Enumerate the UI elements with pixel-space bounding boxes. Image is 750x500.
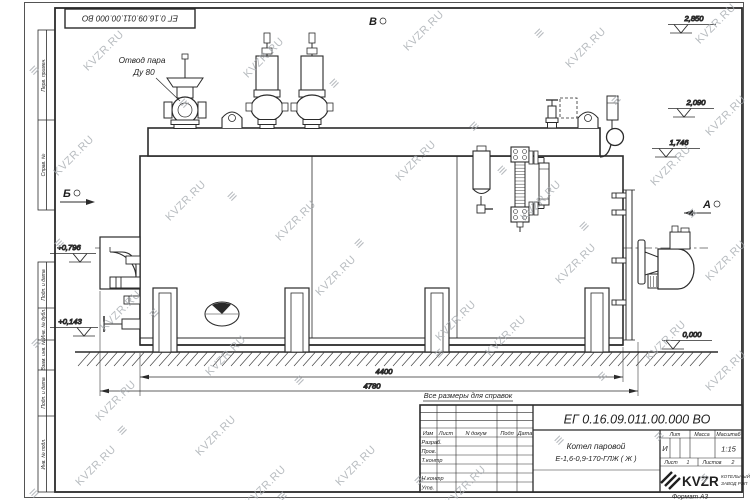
steam-outlet-text-1: Отвод пара: [119, 56, 166, 65]
reference-note-text: Все размеры для справок: [424, 391, 513, 400]
margin-label: Подп. и дата: [41, 377, 47, 409]
logo-text: KVZR: [682, 474, 719, 489]
margin-label: Инв. № дубл.: [41, 309, 47, 340]
product-name-2: Е-1,6-0,9-170-ГЛЖ ( Ж ): [555, 454, 637, 463]
steam-outlet-text-2: Ду 80: [132, 68, 155, 77]
boiler-body-group: [75, 33, 718, 366]
safety-valve: [246, 33, 333, 129]
sheet-value: 1: [687, 460, 690, 466]
row-razrab: Разраб.: [422, 440, 442, 446]
row-utv: Утв.: [421, 486, 435, 492]
col-podp: Подп: [500, 431, 513, 437]
format-label: Формат А3: [672, 494, 708, 500]
col-list: Лист: [438, 431, 454, 437]
lit-value: И: [662, 444, 668, 453]
fan-unit: [638, 226, 694, 289]
scale-value: 1:15: [721, 445, 737, 454]
view-a-label: А: [702, 199, 711, 211]
row-nkontr: Н.контр: [422, 476, 444, 482]
col-data: Дата: [517, 431, 533, 437]
view-b-label: Б: [63, 188, 71, 200]
row-prov: Пров.: [422, 449, 437, 455]
elevation-0796: +0,796: [57, 243, 81, 252]
margin-label: Справ. №: [41, 153, 47, 176]
elevation-2850: 2,850: [683, 14, 704, 23]
margin-label: Перв. примен.: [41, 58, 47, 91]
sheets-value: 2: [731, 460, 735, 466]
doc-number: ЕГ 0.16.09.011.00.000 ВО: [564, 413, 711, 427]
logo-sub-1: КОТЕЛЬНЫЙ: [721, 472, 750, 479]
elevation-0000: 0,000: [682, 330, 702, 339]
dimension-4780: 4780: [364, 382, 382, 391]
col-ndoc: N докум: [465, 431, 486, 437]
boiler-assembly-drawing: Перв. примен. Справ. № Подп. и дата Инв.…: [0, 0, 750, 500]
pressure-gauge: [600, 96, 624, 157]
margin-label: Инв. № подл.: [41, 438, 47, 469]
manhole: [205, 302, 239, 326]
row-tkontr: Т.контр: [422, 458, 443, 464]
lit-label: Лит: [669, 432, 681, 438]
sheet-label: Лист: [663, 460, 678, 466]
drawing-sheet: Перв. примен. Справ. № Подп. и дата Инв.…: [0, 0, 750, 500]
top-stamp: ЕГ 0.16.09.011.00.000 ВО: [65, 9, 195, 28]
margin-label: Подп. и дата: [41, 269, 47, 301]
elevation-0143: +0,143: [58, 317, 82, 326]
ground-hatch: [78, 353, 711, 367]
product-name-1: Котел паровой: [567, 442, 626, 451]
elevation-2090: 2,090: [685, 98, 706, 107]
view-v-label: В: [369, 16, 377, 28]
masshtab-label: Масштаб: [716, 432, 741, 438]
sheets-label: Листов: [702, 460, 722, 466]
elevation-1746: 1,746: [669, 138, 689, 147]
margin-label: Взам. инв. №: [41, 339, 47, 371]
logo-sub-2: ЗАВОД РЭП: [721, 481, 748, 486]
massa-label: Масса: [694, 432, 709, 438]
dimension-4400: 4400: [376, 367, 394, 376]
reference-note: Все размеры для справок: [423, 391, 513, 401]
top-stamp-doc-number: ЕГ 0.16.09.011.00.000 ВО: [81, 14, 178, 23]
col-izm: Изм: [423, 431, 434, 437]
